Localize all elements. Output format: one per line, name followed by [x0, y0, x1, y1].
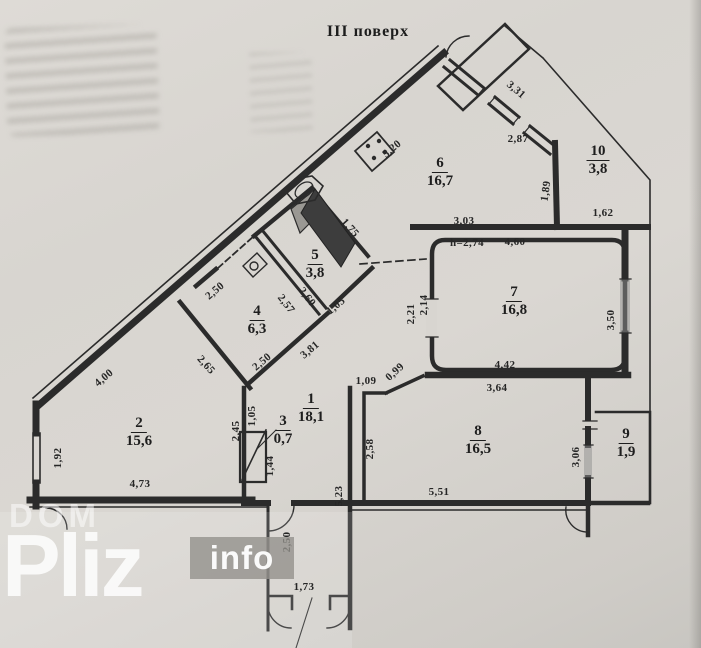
room-number: 6	[432, 156, 448, 173]
dimension-label: 2,65	[195, 353, 218, 377]
dimension-label: 0,99	[383, 361, 407, 384]
room-label-2: 215,6	[126, 414, 152, 450]
dimension-label: 2,45	[230, 421, 242, 442]
dimension-label: 3,50	[605, 310, 617, 331]
room-number: 10	[587, 144, 610, 161]
room-label-7: 716,8	[501, 283, 527, 319]
dimension-label: 5,51	[429, 486, 450, 498]
room-number: 1	[303, 392, 319, 409]
room-number: 9	[618, 427, 634, 444]
room-label-3: 30,7	[274, 412, 293, 448]
room-area: 15,6	[126, 433, 152, 450]
dimension-label: 2,87	[508, 133, 529, 145]
room-number: 4	[249, 304, 265, 321]
room-label-8: 816,5	[465, 422, 491, 458]
dimension-label: 2,50	[203, 280, 227, 303]
floor-plan-scan: III поверх 118,1215,630,746,353,8616,771…	[0, 0, 701, 648]
room-number: 8	[470, 424, 486, 441]
dimension-label: 2,21	[405, 304, 417, 325]
room-area: 6,3	[248, 321, 267, 338]
room-label-9: 91,9	[617, 425, 636, 461]
room-area: 16,7	[427, 173, 453, 190]
dimension-label: 2,58	[364, 439, 376, 460]
room-area: 0,7	[274, 431, 293, 448]
dimension-label: h=2,74	[450, 237, 484, 249]
label-layer: III поверх 118,1215,630,746,353,8616,771…	[0, 0, 701, 648]
room-number: 2	[131, 416, 147, 433]
room-area: 3,8	[306, 265, 325, 282]
dimension-label: 1,05	[324, 295, 348, 318]
dimension-label: 3,31	[504, 79, 528, 102]
dimension-label: 3,64	[487, 382, 508, 394]
dimension-label: 4,73	[130, 478, 151, 490]
dimension-label: 2,57	[275, 292, 297, 316]
room-area: 3,8	[587, 161, 610, 178]
dimension-label: 2,14	[418, 295, 430, 316]
room-number: 3	[275, 414, 291, 431]
dimension-label: 5,20	[380, 138, 404, 161]
dimension-label: 2,50	[250, 351, 274, 374]
room-number: 7	[506, 285, 522, 302]
dimension-label: 1,09	[356, 375, 377, 387]
dimension-label: 3,03	[454, 215, 475, 227]
dimension-label: 1,44	[264, 456, 276, 477]
room-label-4: 46,3	[248, 302, 267, 338]
room-label-6: 616,7	[427, 154, 453, 190]
room-area: 1,9	[617, 444, 636, 461]
dimension-label: 1,62	[593, 207, 614, 219]
dimension-label: 1,73	[294, 581, 315, 593]
room-label-10: 103,8	[587, 142, 610, 178]
dimension-label: 1,92	[52, 448, 64, 469]
room-label-5: 53,8	[306, 246, 325, 282]
room-area: 18,1	[298, 409, 324, 426]
room-area: 16,8	[501, 302, 527, 319]
dimension-label: 4,42	[495, 359, 516, 371]
dimension-label: 3,06	[570, 447, 582, 468]
dimension-label: 4,60	[505, 236, 526, 248]
dimension-label: 2,50	[281, 532, 293, 553]
room-label-1: 118,1	[298, 390, 324, 426]
dimension-label: 1,05	[246, 406, 258, 427]
room-area: 16,5	[465, 441, 491, 458]
dimension-label: 5,23	[333, 486, 345, 507]
room-number: 5	[307, 248, 323, 265]
dimension-label: 4,00	[92, 367, 116, 390]
dimension-label: 1,75	[339, 216, 362, 240]
dimension-label: 2,60	[296, 285, 318, 309]
page-title: III поверх	[327, 23, 409, 41]
dimension-label: 1,89	[539, 180, 554, 202]
dimension-label: 3,81	[298, 339, 322, 362]
